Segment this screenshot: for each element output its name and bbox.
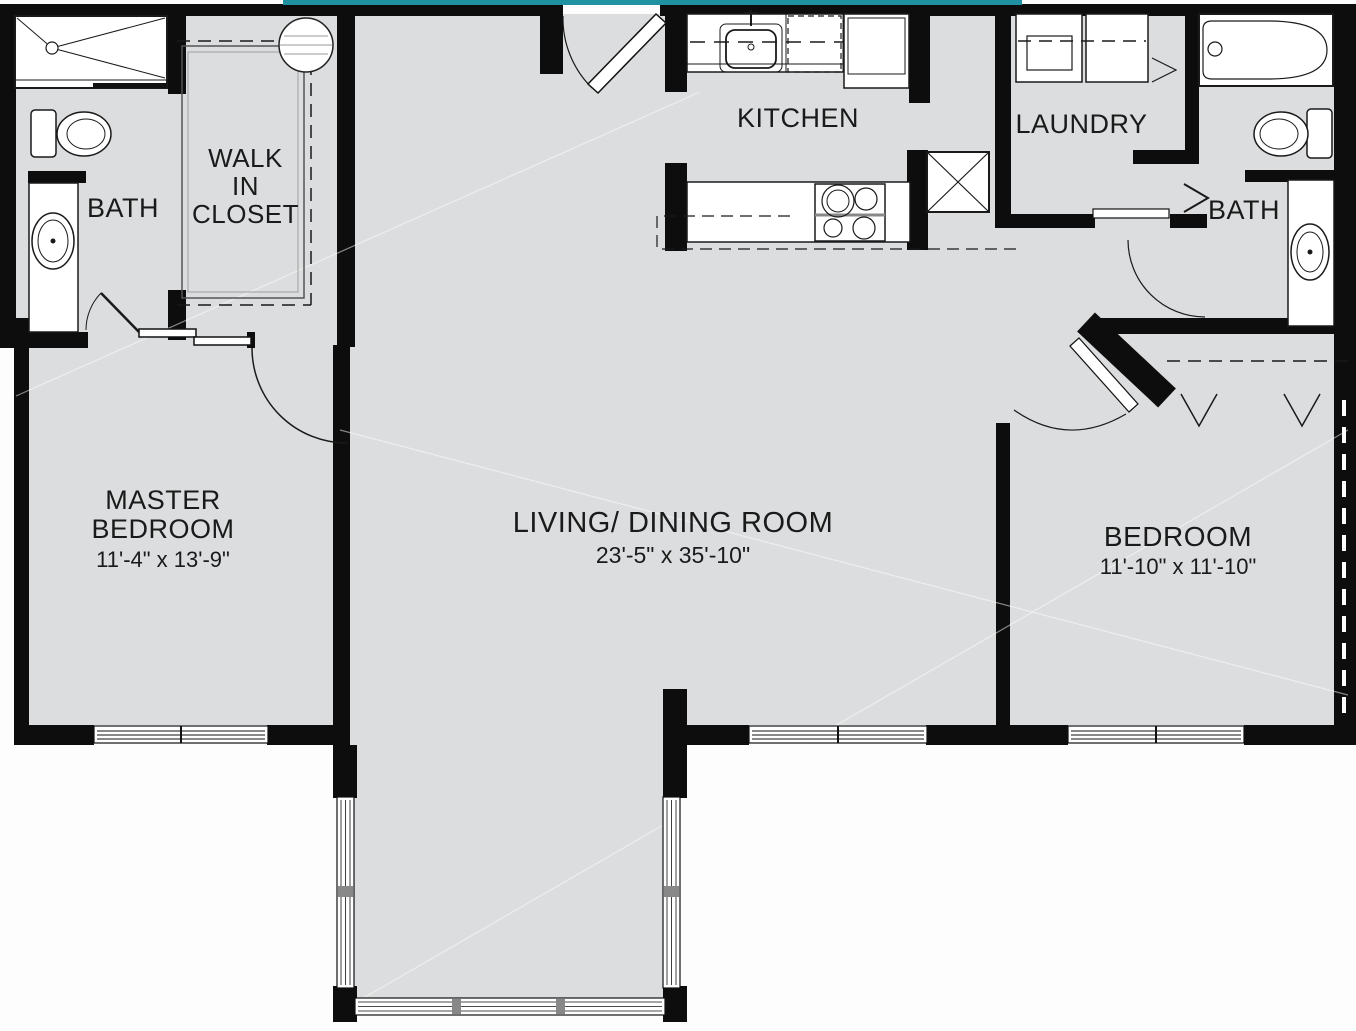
closet-name-line3: CLOSET [168,200,323,228]
entry-door [563,14,666,93]
range [815,184,885,241]
patio-window-left [337,797,354,988]
closet-name-line1: WALK [168,144,323,172]
corner-tick [1152,58,1176,82]
toilet-second [1254,109,1332,158]
pantry-cabinet [927,152,989,212]
dryer [1086,14,1148,82]
toilet-master [31,110,111,157]
closet-sliding-door [139,329,251,345]
floor-plan: MASTER BEDROOM 11'-4" x 13'-9" WALK IN C… [0,0,1356,1031]
label-kitchen: KITCHEN [722,104,874,133]
label-bath-master: BATH [58,194,188,223]
living-dining-dimensions: 23'-5" x 35'-10" [493,543,853,567]
bedroom-closet-door-marks [1181,394,1320,426]
master-bedroom-name-line2: BEDROOM [28,515,298,544]
bedroom-name: BEDROOM [1048,522,1308,551]
wall-vanity-divider [28,171,86,183]
master-bedroom-name-line1: MASTER [28,486,298,515]
window-living [749,726,927,743]
label-laundry: LAUNDRY [1004,110,1159,139]
door-master-bath [86,293,139,332]
label-living-dining: LIVING/ DINING ROOM 23'-5" x 35'-10" [493,508,853,567]
window-master [94,726,268,743]
door-arc-master-bedroom [252,348,347,443]
kitchen-name: KITCHEN [722,104,874,133]
door-arc-bedroom [1014,410,1126,430]
bathtub [1199,14,1333,86]
bath-second-name: BATH [1180,196,1308,225]
label-master-bedroom: MASTER BEDROOM 11'-4" x 13'-9" [28,486,298,572]
living-dining-name: LIVING/ DINING ROOM [493,508,853,539]
label-bath-second: BATH [1180,196,1308,225]
laundry-name: LAUNDRY [1004,110,1159,139]
bedroom-dimensions: 11'-10" x 11'-10" [1048,555,1308,579]
label-walk-in-closet: WALK IN CLOSET [168,144,323,228]
master-bedroom-dimensions: 11'-4" x 13'-9" [28,548,298,572]
washer [1016,14,1082,82]
label-bedroom: BEDROOM 11'-10" x 11'-10" [1048,522,1308,579]
refrigerator [844,14,909,88]
window-bedroom [1068,726,1244,743]
patio-window-bottom [355,998,665,1015]
shower [15,16,167,88]
laundry-door-leaf [1093,209,1169,218]
closet-circle-symbol [279,18,333,72]
door-arc-second-bath [1128,240,1205,317]
closet-name-line2: IN [168,172,323,200]
bath-master-name: BATH [58,194,188,223]
patio-window-right [663,797,680,988]
